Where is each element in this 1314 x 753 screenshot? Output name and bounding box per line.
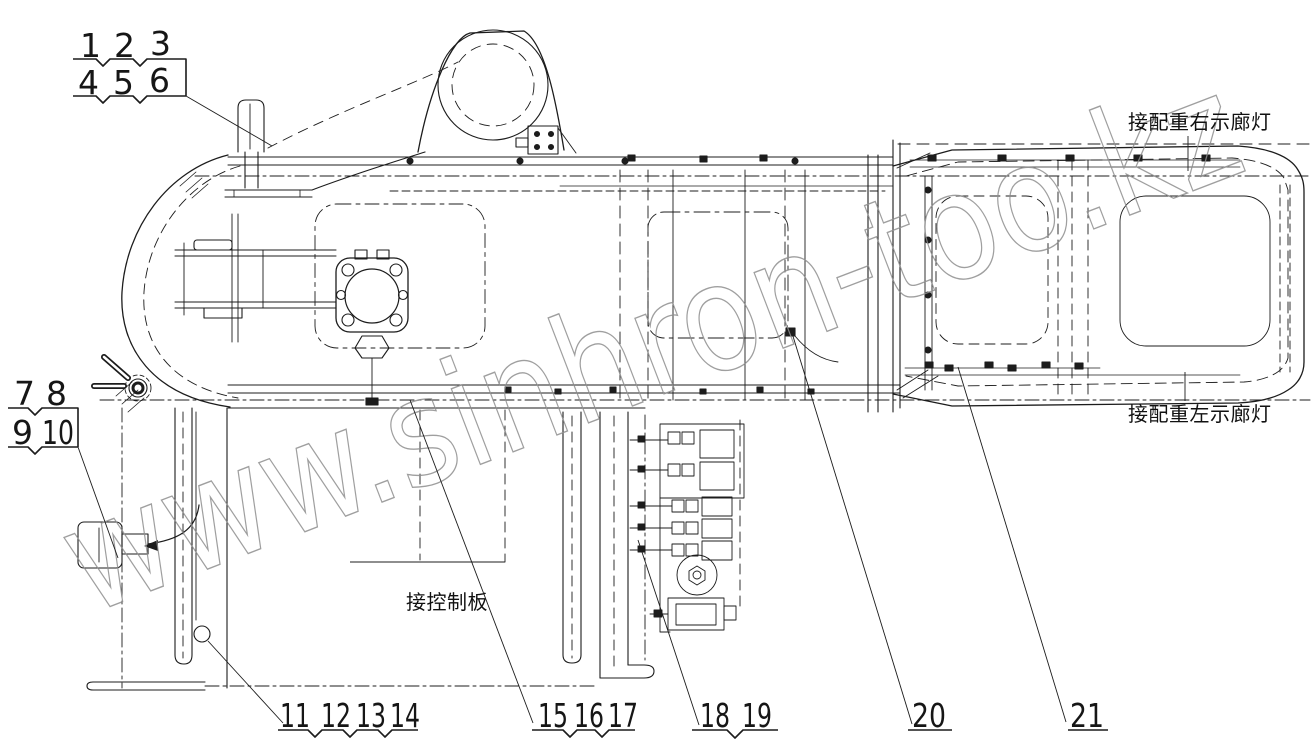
valve-bank bbox=[630, 415, 744, 660]
callout-number-1: 1 bbox=[80, 26, 101, 65]
callout-number-15: 15 bbox=[538, 696, 568, 735]
callout-number-14: 14 bbox=[390, 696, 420, 735]
callout-number-17: 17 bbox=[608, 696, 638, 735]
callout-number-8: 8 bbox=[46, 374, 67, 413]
callout-number-21: 21 bbox=[1070, 696, 1104, 735]
callout-number-10: 10 bbox=[42, 413, 74, 452]
callout-number-4: 4 bbox=[78, 63, 99, 102]
callout-number-11: 11 bbox=[280, 696, 310, 735]
top-rail bbox=[228, 155, 893, 191]
label-counterweight-right-marker-light: 接配重右示廊灯 bbox=[1128, 110, 1272, 134]
callout-number-7: 7 bbox=[14, 374, 35, 413]
ladder-frame bbox=[175, 214, 336, 342]
callout-number-18: 18 bbox=[700, 696, 730, 735]
wiring-diagram: www.sinhron-too.kz 1 2 3 4 5 6 7 8 9 1 bbox=[0, 0, 1314, 753]
callout-number-19: 19 bbox=[742, 696, 772, 735]
callout-number-2: 2 bbox=[114, 26, 135, 65]
boom-pivot-hump bbox=[418, 30, 564, 152]
lamp-bracket-post bbox=[225, 100, 312, 197]
left-grommet-fitting bbox=[94, 357, 151, 401]
watermark-text: www.sinhron-too.kz bbox=[39, 41, 1263, 648]
callout-number-16: 16 bbox=[574, 696, 604, 735]
callout-number-5: 5 bbox=[113, 63, 134, 102]
label-counterweight-left-marker-light: 接配重左示廊灯 bbox=[1128, 402, 1272, 426]
label-control-panel: 接控制板 bbox=[406, 590, 488, 614]
callout-number-12: 12 bbox=[321, 696, 351, 735]
callout-number-3: 3 bbox=[150, 24, 171, 63]
callout-number-6: 6 bbox=[149, 61, 170, 100]
callout-number-20: 20 bbox=[912, 696, 946, 735]
callout-number-13: 13 bbox=[356, 696, 386, 735]
diagram-page: www.sinhron-too.kz 1 2 3 4 5 6 7 8 9 1 bbox=[0, 0, 1314, 753]
callout-number-9: 9 bbox=[12, 413, 33, 452]
